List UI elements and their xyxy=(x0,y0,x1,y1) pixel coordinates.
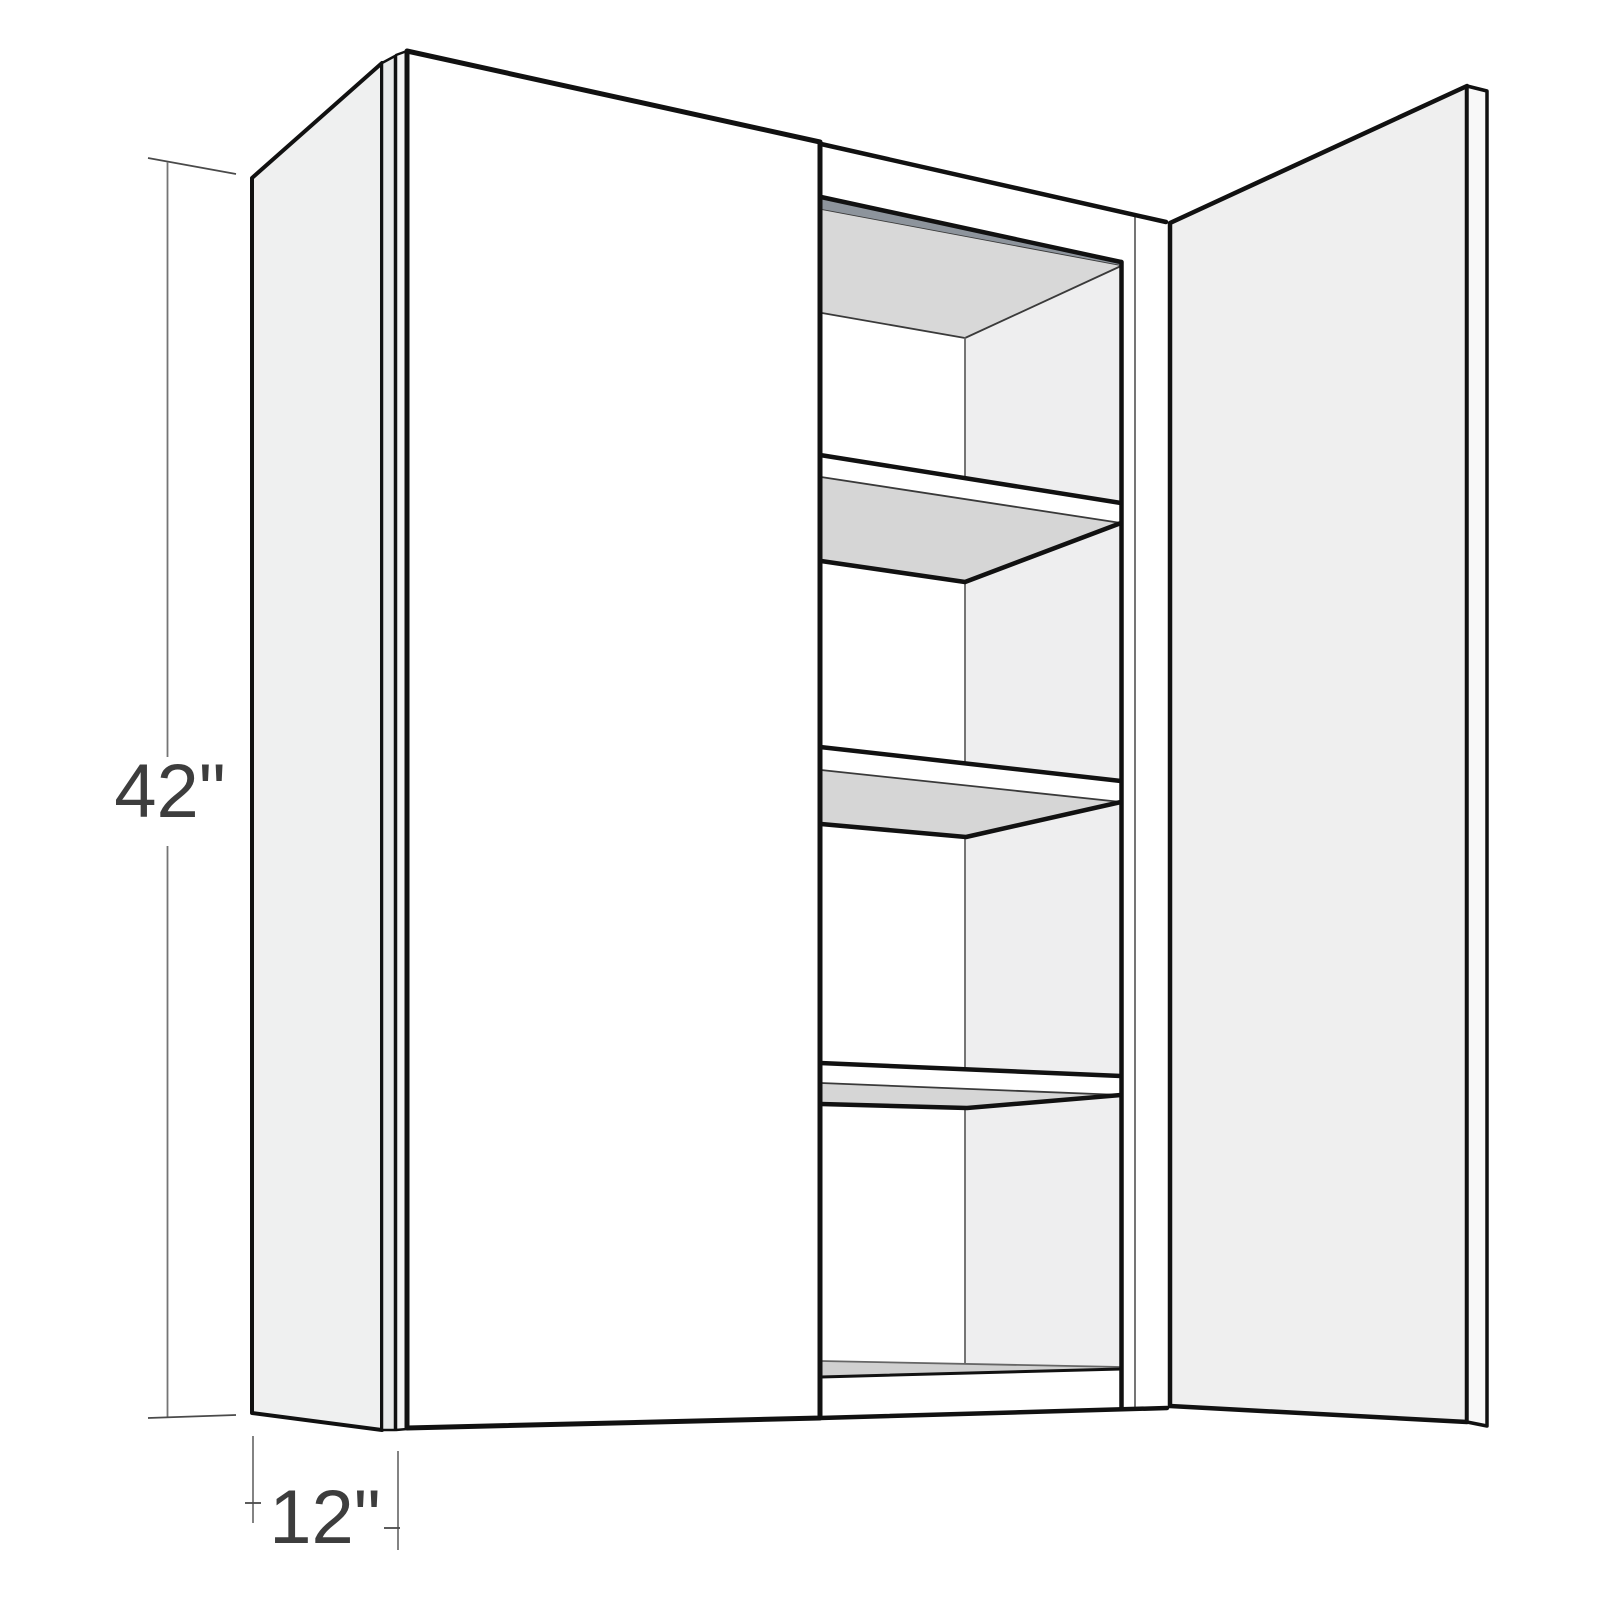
diagram-canvas: 42" 12" xyxy=(0,0,1600,1600)
cabinet-dimension-diagram: 42" 12" xyxy=(0,0,1600,1600)
height-dimension-bottom-tick xyxy=(148,1415,236,1418)
closed-door xyxy=(407,51,820,1428)
side-panel-front-edge xyxy=(382,56,395,1430)
open-door xyxy=(1170,86,1467,1422)
depth-dimension: 12" xyxy=(245,1436,400,1560)
open-door-outer-edge xyxy=(1467,86,1487,1426)
depth-dimension-label: 12" xyxy=(269,1475,381,1560)
height-dimension-top-tick xyxy=(148,158,236,174)
height-dimension-label: 42" xyxy=(114,749,226,834)
left-side-panel xyxy=(252,63,382,1430)
height-dimension: 42" xyxy=(114,158,236,1418)
